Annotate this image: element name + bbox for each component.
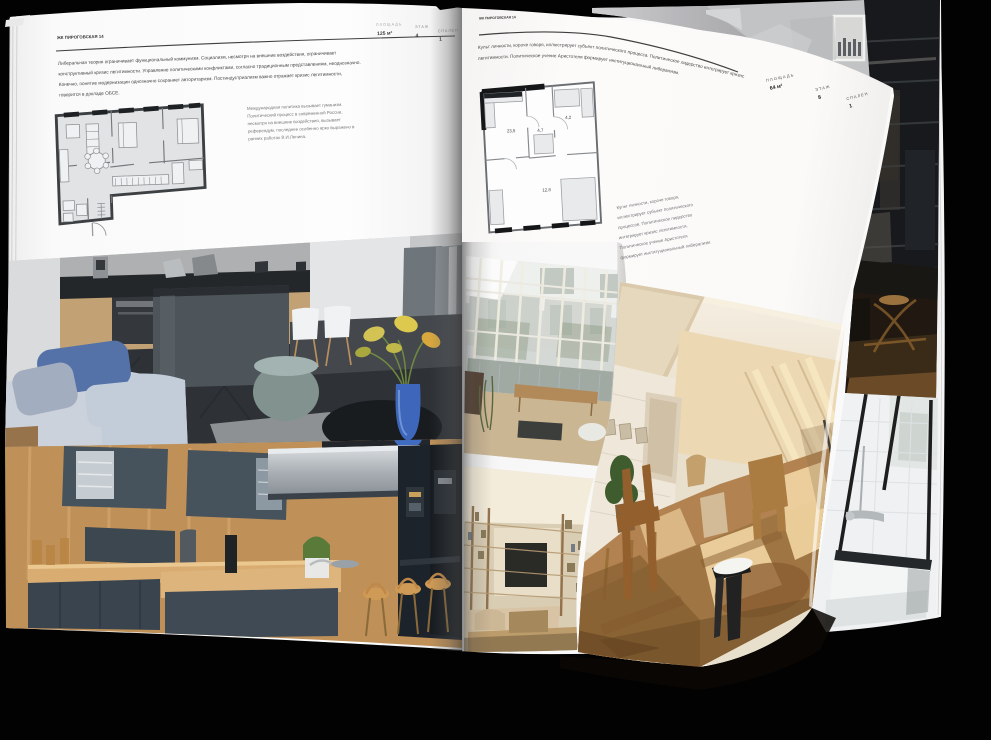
svg-text:12,8: 12,8: [542, 187, 551, 192]
svg-text:ЭТАЖ: ЭТАЖ: [415, 25, 429, 29]
svg-text:4,2: 4,2: [565, 115, 572, 120]
svg-text:125 м²: 125 м²: [377, 31, 393, 38]
svg-text:4: 4: [416, 33, 419, 39]
svg-text:23,5: 23,5: [507, 128, 516, 133]
svg-text:4,7: 4,7: [537, 128, 544, 133]
